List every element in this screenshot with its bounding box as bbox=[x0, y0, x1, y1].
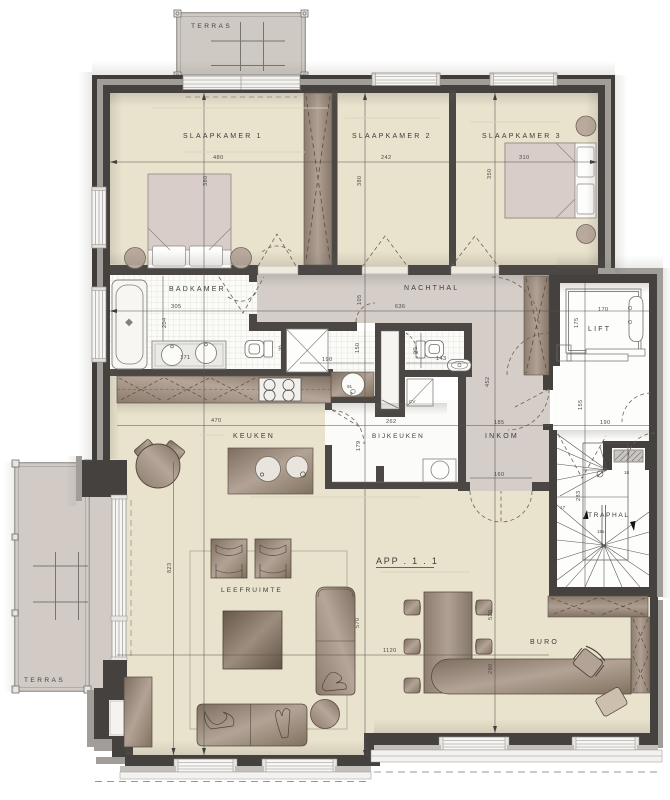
svg-text:350: 350 bbox=[487, 168, 493, 179]
svg-text:SLAAPKAMER 1: SLAAPKAMER 1 bbox=[183, 133, 263, 140]
svg-text:TRAPHAL: TRAPHAL bbox=[588, 512, 630, 519]
svg-text:283: 283 bbox=[576, 490, 582, 501]
svg-text:179: 179 bbox=[356, 440, 362, 451]
svg-text:160: 160 bbox=[494, 472, 505, 478]
svg-text:823: 823 bbox=[167, 562, 173, 573]
svg-text:BURO: BURO bbox=[530, 639, 559, 646]
svg-text:19x: 19x bbox=[597, 529, 605, 534]
svg-text:SLAAPKAMER 2: SLAAPKAMER 2 bbox=[352, 133, 432, 140]
svg-text:155: 155 bbox=[578, 399, 584, 410]
svg-text:APP . 1 . 1: APP . 1 . 1 bbox=[376, 556, 439, 566]
svg-text:380: 380 bbox=[203, 175, 209, 186]
svg-text:452: 452 bbox=[485, 376, 491, 387]
svg-text:INKOM: INKOM bbox=[485, 433, 519, 440]
svg-text:143: 143 bbox=[436, 356, 447, 362]
svg-text:18: 18 bbox=[624, 470, 630, 475]
svg-text:17: 17 bbox=[560, 505, 566, 510]
svg-text:BIJKEUKEN: BIJKEUKEN bbox=[372, 433, 425, 440]
svg-text:185: 185 bbox=[494, 420, 505, 426]
svg-text:91: 91 bbox=[347, 384, 353, 389]
svg-text:190: 190 bbox=[322, 357, 333, 363]
svg-text:380: 380 bbox=[357, 175, 363, 186]
svg-text:262: 262 bbox=[386, 419, 397, 425]
svg-text:SLAAPKAMER 3: SLAAPKAMER 3 bbox=[482, 133, 562, 140]
svg-text:1120: 1120 bbox=[383, 648, 397, 654]
svg-text:636: 636 bbox=[395, 304, 406, 310]
svg-text:170: 170 bbox=[598, 307, 609, 313]
svg-text:150: 150 bbox=[355, 342, 361, 353]
svg-text:204: 204 bbox=[162, 317, 168, 328]
svg-text:520: 520 bbox=[488, 609, 494, 620]
svg-text:171: 171 bbox=[180, 355, 191, 361]
svg-text:570: 570 bbox=[355, 617, 361, 628]
svg-text:LIFT: LIFT bbox=[588, 326, 611, 333]
svg-text:190: 190 bbox=[600, 420, 611, 426]
svg-text:BADKAMER: BADKAMER bbox=[169, 286, 226, 293]
svg-text:242: 242 bbox=[381, 155, 392, 161]
svg-text:480: 480 bbox=[213, 155, 224, 161]
svg-text:305: 305 bbox=[171, 304, 182, 310]
svg-text:175: 175 bbox=[574, 317, 580, 328]
svg-text:KEUKEN: KEUKEN bbox=[233, 433, 275, 440]
svg-text:VA: VA bbox=[278, 345, 283, 352]
svg-text:470: 470 bbox=[211, 418, 222, 424]
svg-text:290: 290 bbox=[488, 663, 494, 674]
svg-text:310: 310 bbox=[519, 155, 530, 161]
svg-text:105: 105 bbox=[357, 294, 363, 305]
svg-text:LEEFRUIMTE: LEEFRUIMTE bbox=[221, 587, 283, 594]
svg-text:TERRAS: TERRAS bbox=[24, 677, 65, 684]
svg-text:9: 9 bbox=[350, 391, 353, 396]
svg-text:90: 90 bbox=[413, 347, 419, 354]
svg-text:TERRAS: TERRAS bbox=[191, 23, 232, 30]
